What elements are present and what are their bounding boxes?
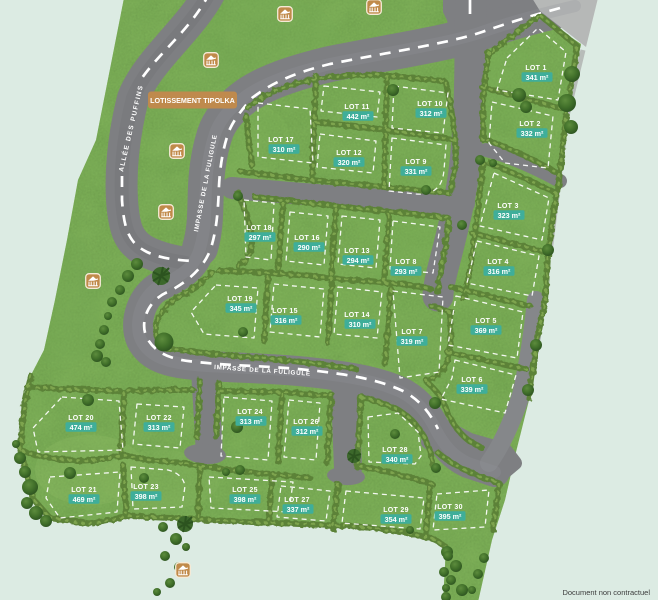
svg-text:LOT 11: LOT 11 xyxy=(344,104,369,111)
svg-text:LOT 6: LOT 6 xyxy=(461,377,482,384)
svg-text:Document non contractuel: Document non contractuel xyxy=(562,588,650,597)
svg-text:LOT 3: LOT 3 xyxy=(497,203,518,210)
svg-text:339 m²: 339 m² xyxy=(461,385,484,394)
svg-text:310 m²: 310 m² xyxy=(349,320,372,329)
svg-text:LOT 23: LOT 23 xyxy=(133,484,159,491)
svg-text:332 m²: 332 m² xyxy=(521,129,544,138)
svg-text:395 m²: 395 m² xyxy=(439,512,462,521)
svg-text:LOT 13: LOT 13 xyxy=(344,248,370,255)
svg-text:316 m²: 316 m² xyxy=(488,267,511,276)
svg-text:294 m²: 294 m² xyxy=(347,256,370,265)
svg-text:312 m²: 312 m² xyxy=(420,109,443,118)
svg-text:319 m²: 319 m² xyxy=(401,337,424,346)
svg-text:337 m²: 337 m² xyxy=(287,505,310,514)
svg-text:LOT 14: LOT 14 xyxy=(344,312,370,319)
svg-text:LOT 29: LOT 29 xyxy=(383,507,409,514)
svg-text:340 m²: 340 m² xyxy=(386,455,409,464)
svg-text:LOT 28: LOT 28 xyxy=(382,447,408,454)
svg-text:LOT 19: LOT 19 xyxy=(227,296,253,303)
svg-text:LOT 30: LOT 30 xyxy=(437,504,463,511)
svg-text:LOT 25: LOT 25 xyxy=(232,487,258,494)
svg-text:LOT 18: LOT 18 xyxy=(246,225,272,232)
svg-text:LOT 27: LOT 27 xyxy=(284,497,310,504)
svg-text:LOT 10: LOT 10 xyxy=(417,101,443,108)
svg-text:LOT 17: LOT 17 xyxy=(268,137,294,144)
svg-text:345 m²: 345 m² xyxy=(230,304,253,313)
svg-text:320 m²: 320 m² xyxy=(338,158,361,167)
svg-text:290 m²: 290 m² xyxy=(298,243,321,252)
svg-text:LOT 4: LOT 4 xyxy=(487,259,508,266)
svg-text:LOT 16: LOT 16 xyxy=(294,235,320,242)
svg-text:LOT 12: LOT 12 xyxy=(336,150,362,157)
svg-text:398 m²: 398 m² xyxy=(135,492,158,501)
svg-text:323 m²: 323 m² xyxy=(498,211,521,220)
svg-text:313 m²: 313 m² xyxy=(148,423,171,432)
svg-text:LOT 26: LOT 26 xyxy=(293,419,319,426)
svg-text:341 m²: 341 m² xyxy=(526,73,549,82)
svg-text:398 m²: 398 m² xyxy=(234,495,257,504)
svg-text:LOT 7: LOT 7 xyxy=(401,329,422,336)
svg-text:469 m²: 469 m² xyxy=(73,495,96,504)
svg-text:312 m²: 312 m² xyxy=(296,427,319,436)
svg-text:LOT 1: LOT 1 xyxy=(525,65,546,72)
svg-text:LOT 20: LOT 20 xyxy=(68,415,94,422)
svg-text:354 m²: 354 m² xyxy=(385,515,408,524)
svg-text:LOT 15: LOT 15 xyxy=(272,308,298,315)
svg-text:474 m²: 474 m² xyxy=(70,423,93,432)
svg-text:331 m²: 331 m² xyxy=(405,167,428,176)
svg-text:310 m²: 310 m² xyxy=(273,145,296,154)
svg-text:369 m²: 369 m² xyxy=(475,326,498,335)
svg-text:LOT 9: LOT 9 xyxy=(405,159,426,166)
svg-text:293 m²: 293 m² xyxy=(395,267,418,276)
svg-text:297 m²: 297 m² xyxy=(249,233,272,242)
svg-text:316 m²: 316 m² xyxy=(275,316,298,325)
svg-text:LOT 21: LOT 21 xyxy=(71,487,97,494)
svg-text:LOT 22: LOT 22 xyxy=(146,415,172,422)
svg-text:LOTISSEMENT TIPOLKA: LOTISSEMENT TIPOLKA xyxy=(150,96,235,105)
svg-text:313 m²: 313 m² xyxy=(240,417,263,426)
svg-text:442 m²: 442 m² xyxy=(347,112,370,121)
svg-text:LOT 5: LOT 5 xyxy=(475,318,496,325)
svg-text:LOT 8: LOT 8 xyxy=(395,259,416,266)
svg-text:LOT 24: LOT 24 xyxy=(237,409,263,416)
svg-text:LOT 2: LOT 2 xyxy=(519,121,540,128)
